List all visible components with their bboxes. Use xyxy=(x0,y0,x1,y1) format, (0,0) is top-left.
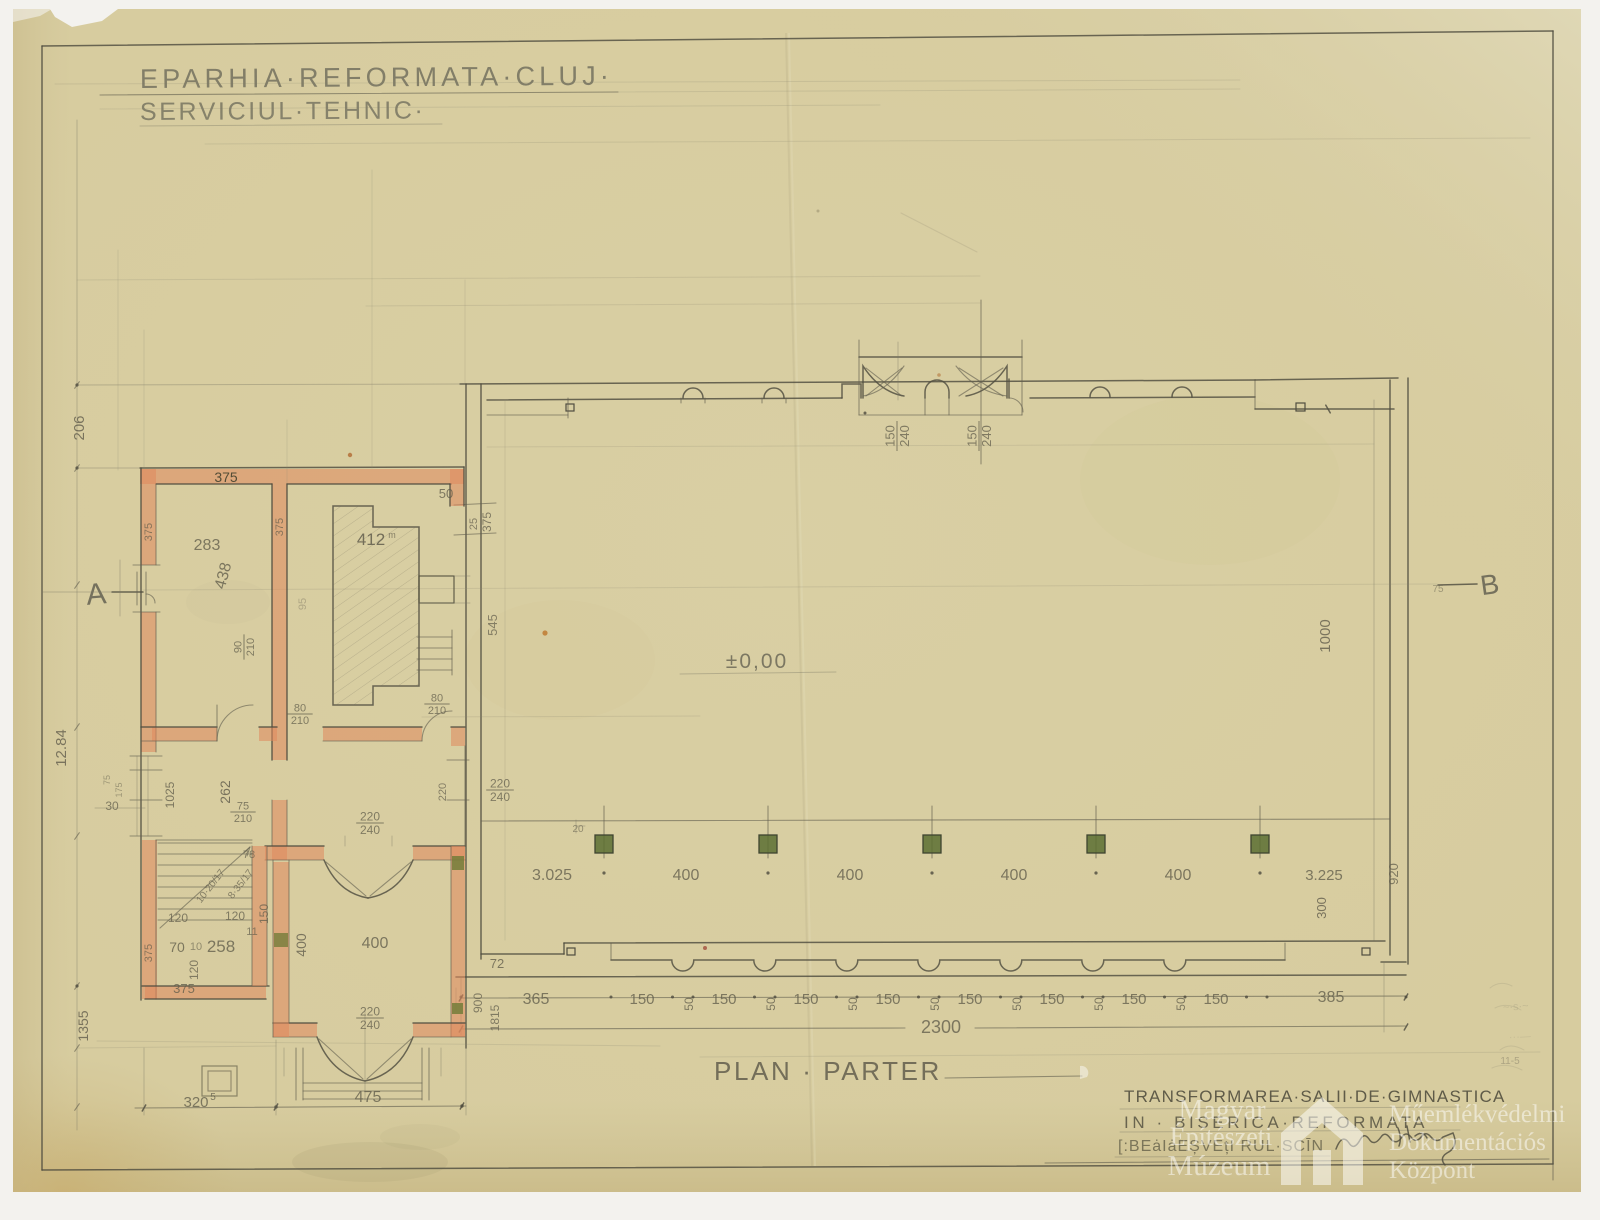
svg-text:3.025: 3.025 xyxy=(532,867,572,884)
svg-text:1815: 1815 xyxy=(488,1004,502,1031)
svg-text:50: 50 xyxy=(1174,997,1188,1011)
svg-text:400: 400 xyxy=(1001,867,1028,884)
svg-text:220: 220 xyxy=(360,1005,380,1019)
svg-text:PLAN · PARTER: PLAN · PARTER xyxy=(714,1056,942,1086)
svg-text:210: 210 xyxy=(428,705,446,717)
svg-text:475: 475 xyxy=(355,1089,382,1106)
svg-text:1025: 1025 xyxy=(163,781,177,808)
svg-text:240: 240 xyxy=(360,1018,380,1032)
svg-text:150: 150 xyxy=(793,991,818,1008)
svg-text:545: 545 xyxy=(485,614,500,636)
svg-text:Dokumentációs: Dokumentációs xyxy=(1389,1129,1546,1156)
svg-text:Műemlékvédelmi: Műemlékvédelmi xyxy=(1389,1101,1565,1128)
svg-text:210: 210 xyxy=(291,715,309,727)
svg-text:m: m xyxy=(388,530,396,540)
svg-text:900: 900 xyxy=(471,993,485,1013)
svg-text:Múzeum: Múzeum xyxy=(1167,1150,1271,1182)
svg-text:50: 50 xyxy=(928,997,942,1011)
svg-text:150: 150 xyxy=(1039,991,1064,1008)
svg-text:A: A xyxy=(85,577,108,612)
svg-text:375: 375 xyxy=(143,523,155,541)
svg-text:±0,00: ±0,00 xyxy=(726,650,788,673)
svg-text:150: 150 xyxy=(875,991,900,1008)
svg-text:150: 150 xyxy=(883,425,898,447)
svg-text:EPARHIA·REFORMATA·CLUJ·: EPARHIA·REFORMATA·CLUJ· xyxy=(140,61,613,94)
svg-text:2300: 2300 xyxy=(921,1017,961,1037)
svg-text:240: 240 xyxy=(360,823,380,837)
svg-text:150: 150 xyxy=(711,991,736,1008)
svg-text:220: 220 xyxy=(437,783,449,801)
svg-text:375: 375 xyxy=(214,469,238,485)
svg-text:120: 120 xyxy=(187,960,201,980)
svg-text:385: 385 xyxy=(1318,989,1345,1006)
svg-text:Központ: Központ xyxy=(1389,1157,1475,1184)
svg-text:5: 5 xyxy=(210,1092,216,1103)
svg-text:···—: ···— xyxy=(1509,1030,1532,1043)
svg-text:30: 30 xyxy=(105,799,119,813)
svg-text:412: 412 xyxy=(357,530,385,549)
svg-text:400: 400 xyxy=(1165,867,1192,884)
svg-text:150: 150 xyxy=(957,991,982,1008)
svg-text:150: 150 xyxy=(257,904,271,924)
svg-text:400: 400 xyxy=(362,935,389,952)
svg-text:1355: 1355 xyxy=(75,1010,91,1041)
svg-text:210: 210 xyxy=(234,813,252,825)
svg-text:90: 90 xyxy=(233,641,245,653)
svg-text:220: 220 xyxy=(490,777,510,791)
svg-text:375: 375 xyxy=(480,512,494,532)
svg-text:50: 50 xyxy=(682,997,696,1011)
svg-text:11: 11 xyxy=(246,926,257,938)
svg-text:95: 95 xyxy=(297,598,309,610)
svg-text:75: 75 xyxy=(102,775,112,785)
svg-text:175: 175 xyxy=(114,782,124,797)
svg-text:75: 75 xyxy=(237,801,249,813)
svg-text:240: 240 xyxy=(897,425,912,447)
svg-text:150: 150 xyxy=(629,991,654,1008)
svg-text:120: 120 xyxy=(168,911,188,925)
svg-text:240: 240 xyxy=(490,790,510,804)
svg-text:78: 78 xyxy=(243,849,255,861)
svg-text:Építészeti: Építészeti xyxy=(1170,1122,1273,1151)
svg-text:375: 375 xyxy=(173,981,195,996)
svg-text:150: 150 xyxy=(1121,991,1146,1008)
svg-text:400: 400 xyxy=(837,867,864,884)
svg-text:120: 120 xyxy=(225,909,245,923)
svg-text:400: 400 xyxy=(673,867,700,884)
svg-text:80: 80 xyxy=(294,703,306,715)
svg-text:25: 25 xyxy=(468,518,480,530)
svg-text:220: 220 xyxy=(360,810,380,824)
svg-text:72: 72 xyxy=(490,956,504,971)
svg-text:375: 375 xyxy=(274,518,286,536)
svg-text:375: 375 xyxy=(143,944,155,962)
svg-text:50: 50 xyxy=(1092,997,1106,1011)
svg-text:150: 150 xyxy=(965,425,980,447)
svg-text:300: 300 xyxy=(1314,897,1329,919)
svg-text:365: 365 xyxy=(523,991,550,1008)
svg-text:210: 210 xyxy=(245,638,257,656)
svg-text:240: 240 xyxy=(979,425,994,447)
svg-text:262: 262 xyxy=(217,780,233,804)
svg-text:50: 50 xyxy=(439,486,453,501)
svg-text:206: 206 xyxy=(71,415,88,440)
svg-text:75: 75 xyxy=(1432,584,1444,595)
svg-text:12.84: 12.84 xyxy=(53,729,70,767)
svg-text:50: 50 xyxy=(1010,997,1024,1011)
svg-text:150: 150 xyxy=(1203,991,1228,1008)
svg-text:80: 80 xyxy=(431,693,443,705)
svg-text:50: 50 xyxy=(846,997,860,1011)
svg-text:3.225: 3.225 xyxy=(1305,867,1343,884)
svg-text:258: 258 xyxy=(207,937,235,956)
svg-text:400: 400 xyxy=(293,933,309,957)
svg-text:320: 320 xyxy=(183,1094,208,1111)
svg-text:70: 70 xyxy=(169,939,185,955)
svg-text:10: 10 xyxy=(190,941,202,953)
svg-text:283: 283 xyxy=(194,537,221,554)
svg-text:920: 920 xyxy=(1386,863,1401,885)
svg-text:SERVICIUL·TEHNIC·: SERVICIUL·TEHNIC· xyxy=(140,97,426,126)
svg-text:50: 50 xyxy=(764,997,778,1011)
svg-text:1000: 1000 xyxy=(1317,619,1334,652)
